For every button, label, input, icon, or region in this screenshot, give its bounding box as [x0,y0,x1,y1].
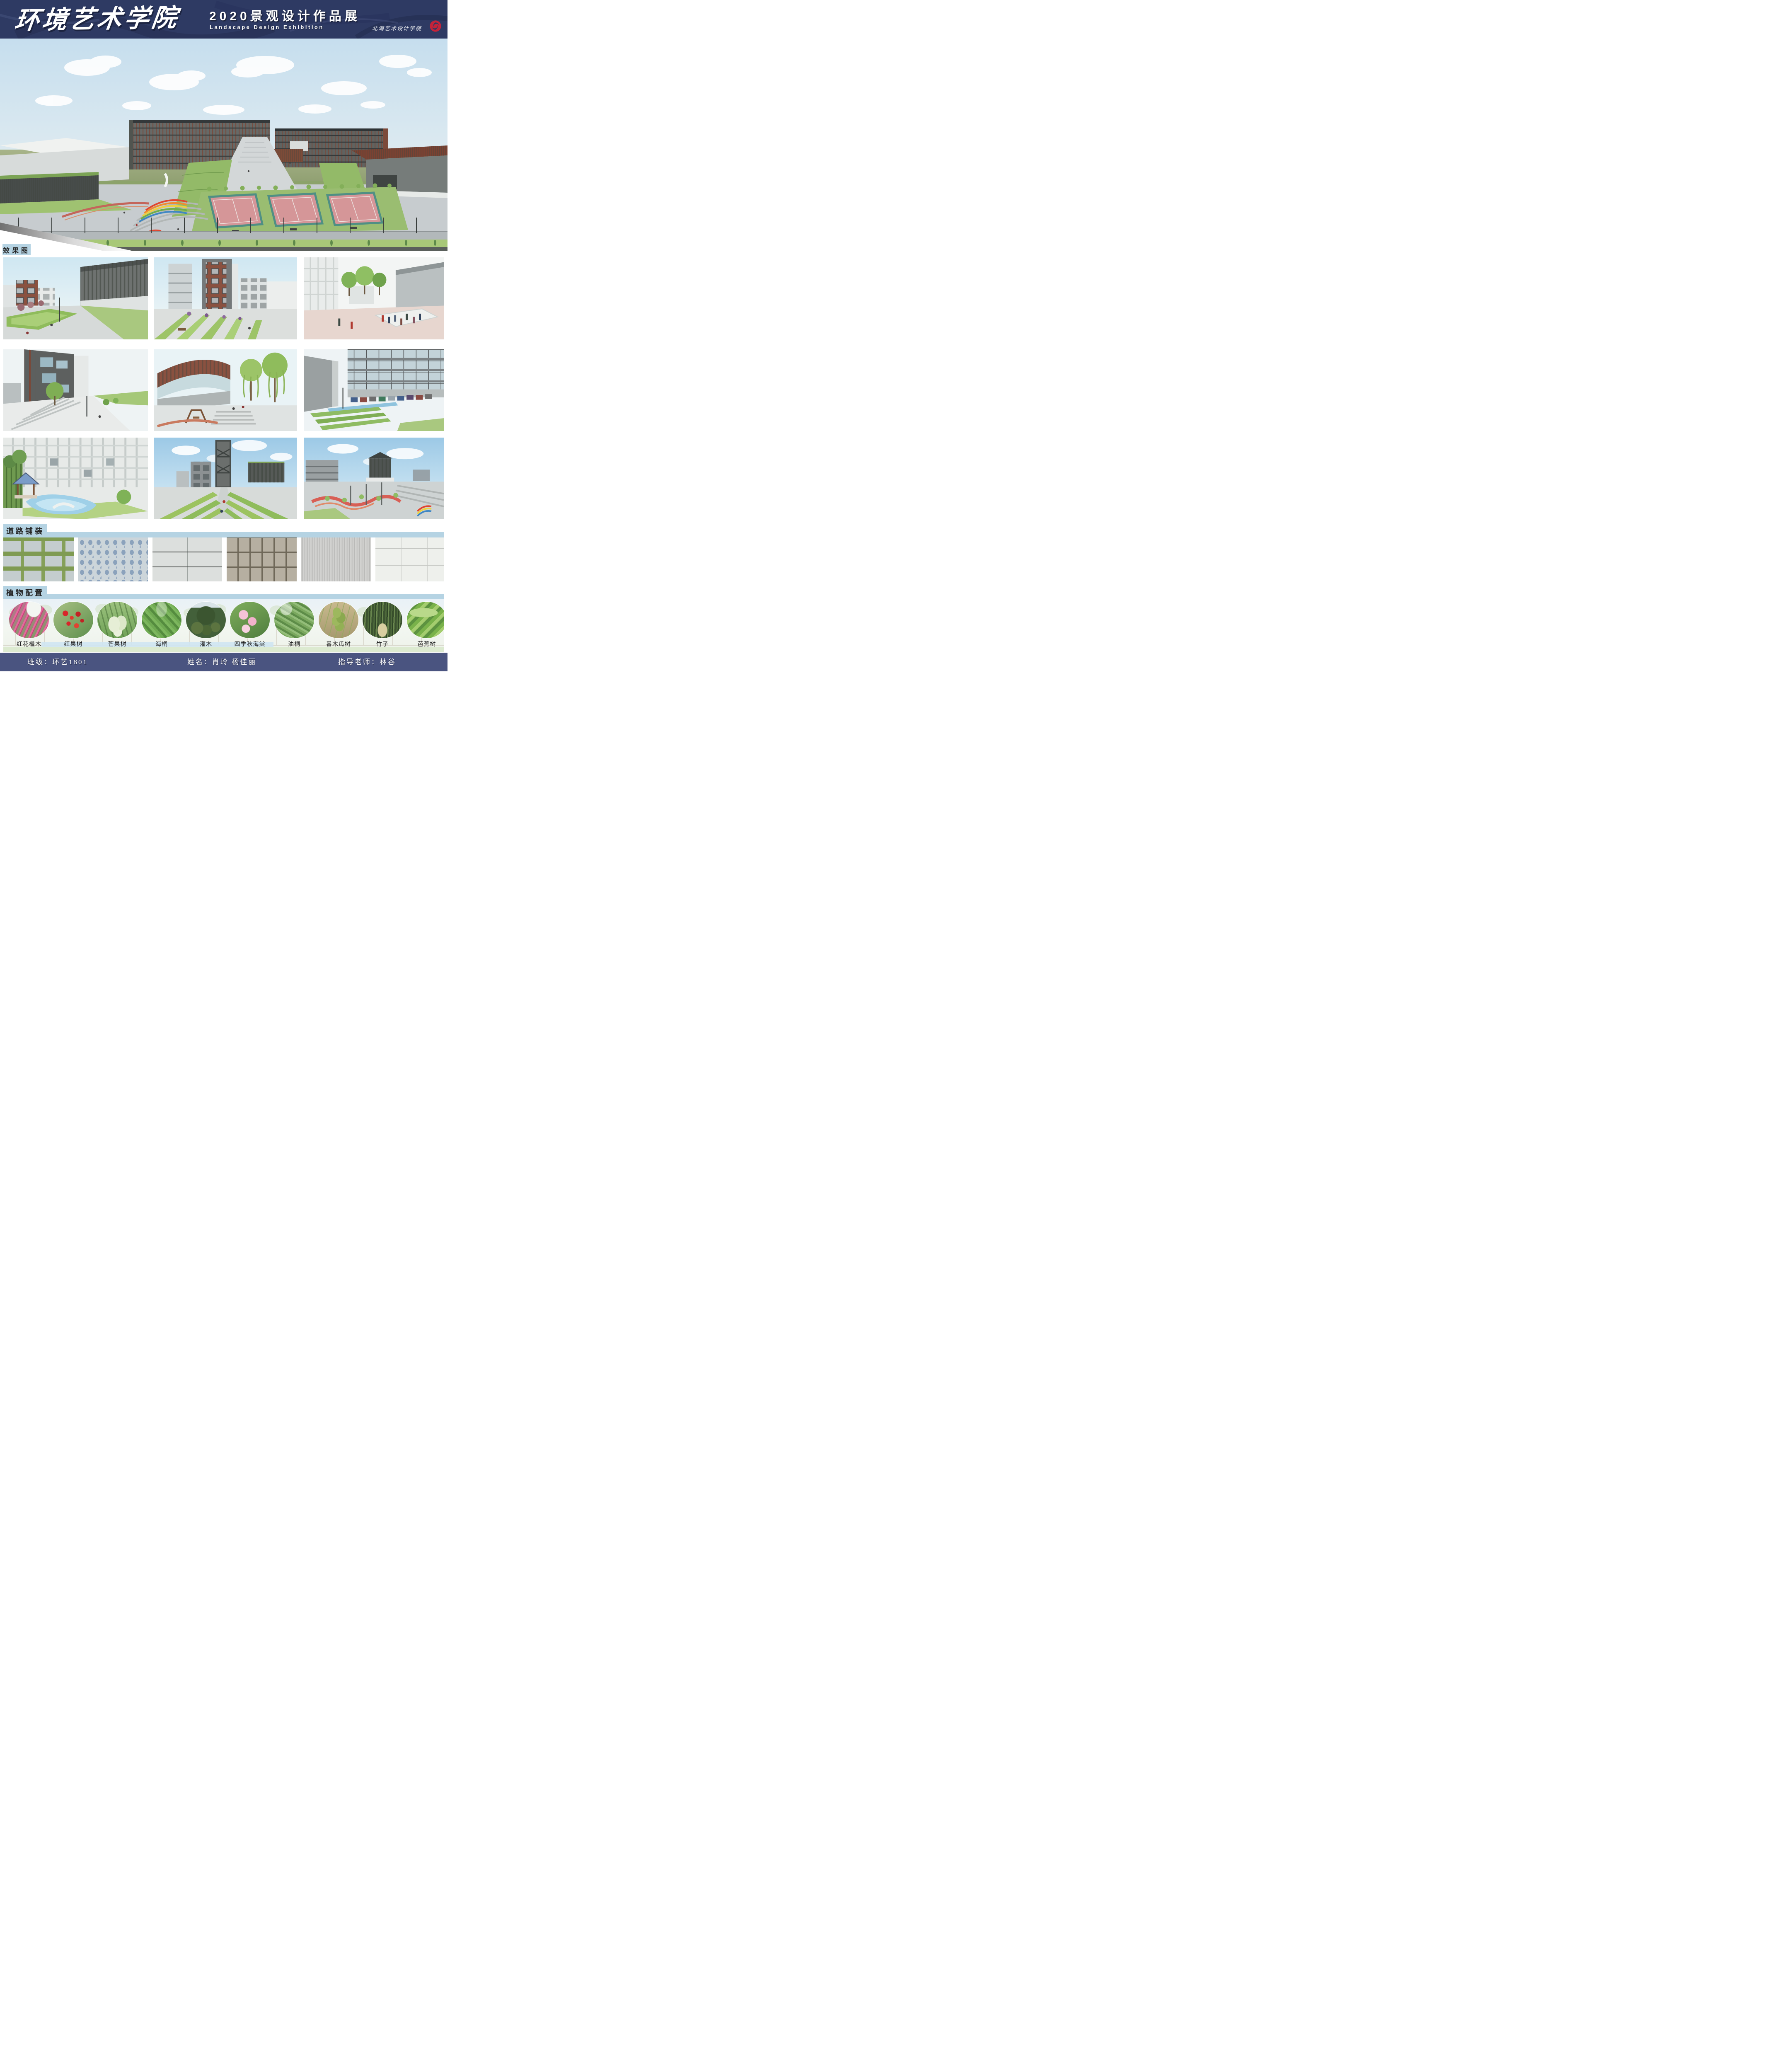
plant-item: 灌木 [182,602,230,651]
plant-name: 油桐 [270,640,318,648]
plant-item: 芭蕉树 [403,602,444,651]
rendering-thumbnail-r2c2 [154,349,297,431]
plant-item: 四季秋海棠 [226,602,274,651]
rendering-thumbnail-r1c3 [304,257,444,339]
paving-swatch-grass-joint-pavers [3,537,74,581]
paving-swatch-tan-square-pavers [227,537,297,581]
subtitle-english: Landscape Design Exhibition [210,24,324,30]
rendering-thumbnail-r3c3 [304,438,444,519]
paving-swatch-striated-stone [301,537,371,581]
paving-swatch-blue-pebble-mosaic [78,537,148,581]
rendering-thumbnail-r2c3 [304,349,444,431]
plant-item: 番木瓜树 [314,602,363,651]
footer-banner: 班级：环艺1801 姓名：肖玲 杨佳丽 指导老师：林谷 [0,653,447,671]
plant-name: 竹子 [358,640,406,648]
class-info: 班级：环艺1801 [27,653,88,671]
plant-item: 竹子 [358,602,406,651]
plant-item: 红果树 [49,602,97,651]
plant-photo-pittosporum [142,602,181,638]
plant-name: 红果树 [49,640,97,648]
plant-photo-papaya-tree [319,602,358,638]
plant-configuration-strip: 红花檵木 红果树 芒果树 海桐 灌木 四季秋海棠 油桐 番木瓜树 [3,599,444,652]
plant-name: 芒果树 [93,640,141,648]
plant-photo-shrub [186,602,226,638]
exhibition-poster: 环境艺术学院 2020景观设计作品展 Landscape Design Exhi… [0,0,447,671]
plant-name: 芭蕉树 [403,640,444,648]
plant-photo-begonia [230,602,270,638]
plant-photo-mango-tree [97,602,137,638]
plant-name: 灌木 [182,640,230,648]
section-strip-plants [3,594,444,599]
advisor-info: 指导老师：林谷 [338,653,396,671]
header-banner: 环境艺术学院 2020景观设计作品展 Landscape Design Exhi… [0,0,447,39]
hero-campus-rendering [0,39,447,251]
plant-photo-loropetalum [9,602,49,638]
plant-photo-banana-tree [407,602,444,638]
plant-item: 芒果树 [93,602,141,651]
rendering-thumbnail-r2c1 [3,349,148,431]
plant-item: 油桐 [270,602,318,651]
rendering-thumbnail-r3c1 [3,438,148,519]
student-names-info: 姓名：肖玲 杨佳丽 [187,653,256,671]
plant-item: 红花檵木 [5,602,53,651]
rendering-thumbnail-r1c2 [154,257,297,339]
rendering-thumbnail-r3c2 [154,438,297,519]
section-label-paving: 道路铺装 [3,524,47,537]
poster-title: 环境艺术学院 [12,0,208,39]
seal-swirl-icon [429,20,442,32]
plant-name: 番木瓜树 [314,640,363,648]
plant-name: 海桐 [138,640,186,648]
section-strip-paving [3,532,444,537]
paving-swatch-gray-granite-tiles [152,537,222,581]
subtitle-chinese: 2020景观设计作品展 [209,6,360,24]
rendering-thumbnail-r1c1 [3,257,148,339]
section-label-renderings: 效果图 [2,244,31,255]
plant-name: 红花檵木 [5,640,53,648]
school-seal-text: 北海艺术设计学院 [372,24,422,32]
plant-item: 海桐 [138,602,186,651]
paving-swatch-white-speckled-tiles [375,537,444,581]
plant-name: 四季秋海棠 [226,640,274,648]
section-label-plants: 植物配置 [3,586,47,599]
plant-photo-bamboo [363,602,402,638]
plant-photo-red-berry-tree [53,602,93,638]
plant-photo-tung-tree [274,602,314,638]
